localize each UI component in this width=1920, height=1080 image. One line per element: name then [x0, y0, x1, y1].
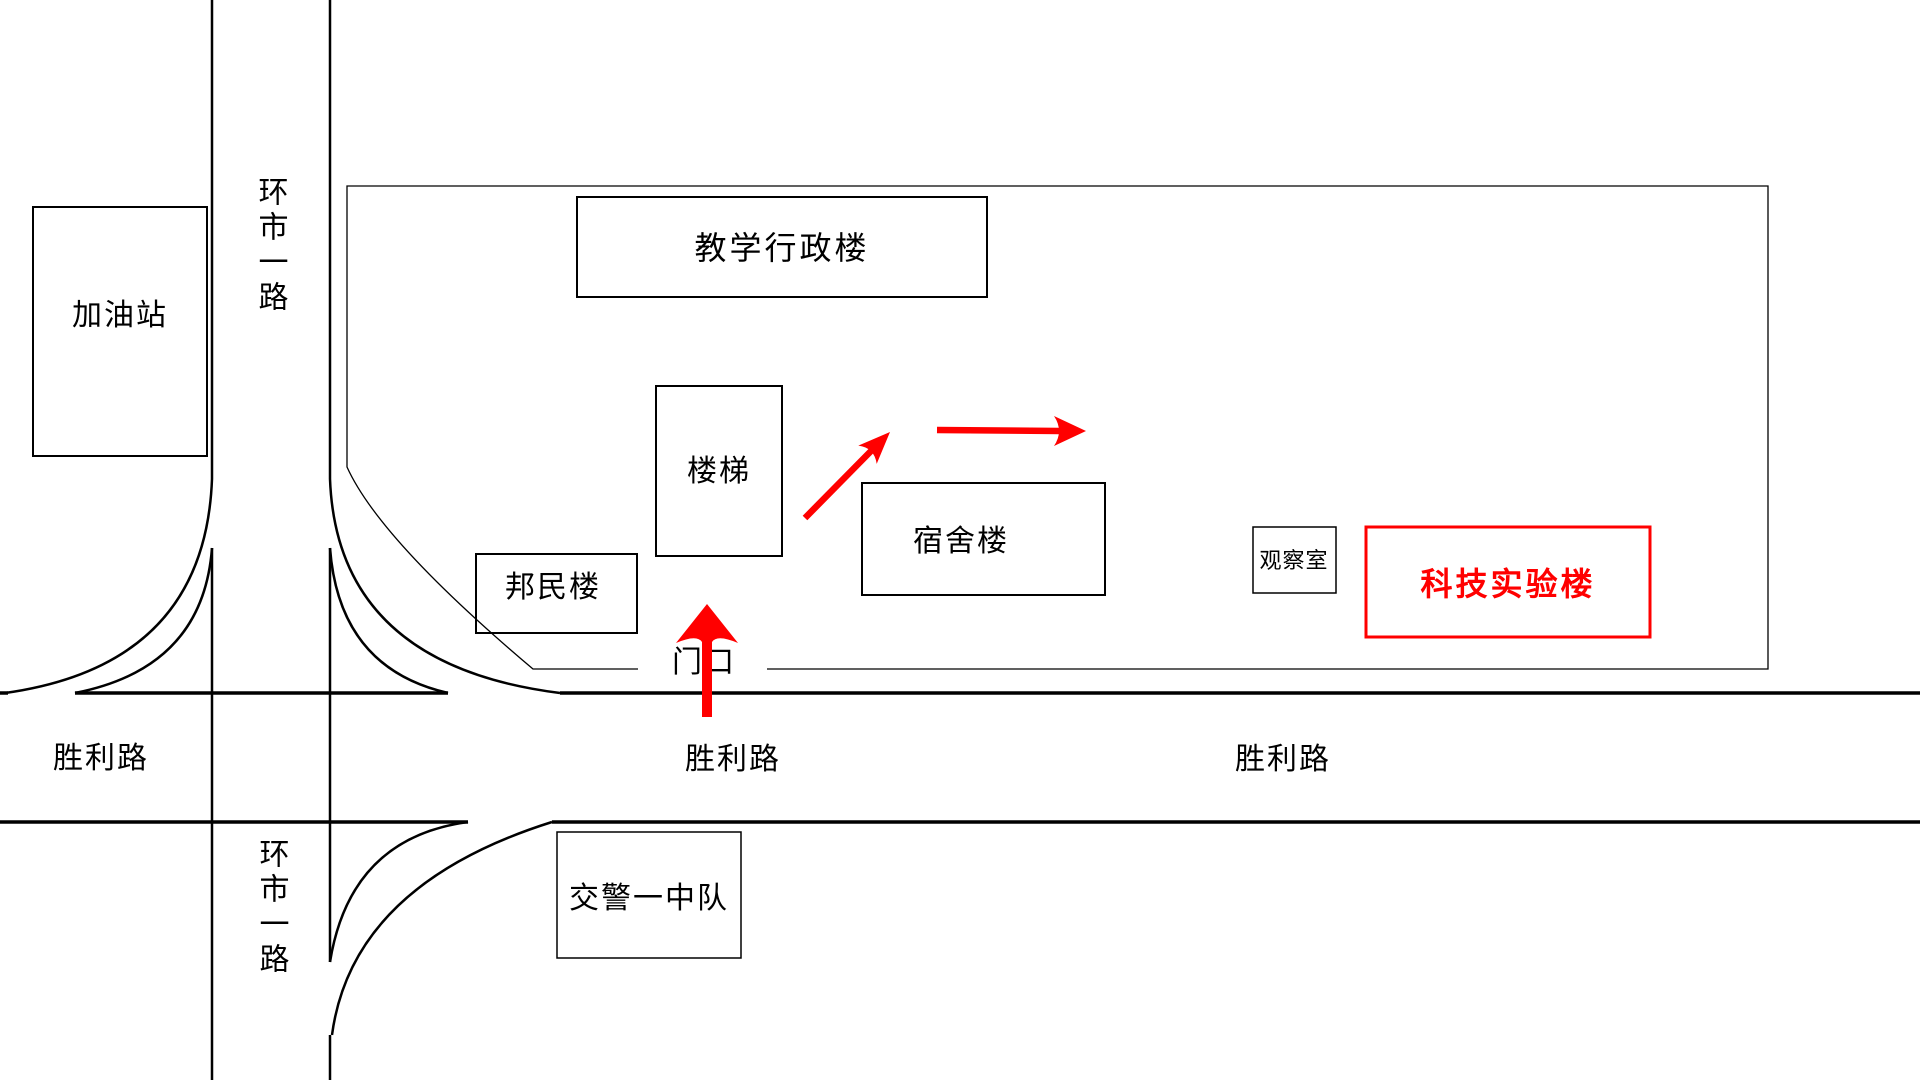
shengli-label-east: 胜利路 [1235, 743, 1331, 776]
traffic-police-label: 交警一中队 [569, 882, 729, 915]
huanshi-label-top: 环市一路 [254, 176, 288, 316]
dormitory-label: 宿舍楼 [913, 525, 1009, 558]
observation-room-label: 观察室 [1259, 548, 1328, 573]
site-map: 加油站 教学行政楼 楼梯 邦民楼 宿舍楼 观察室 科技实验楼 交 [0, 0, 1920, 1080]
se-outer-curve [330, 822, 468, 962]
building-sci-tech-lab: 科技实验楼 [1366, 527, 1650, 637]
sci-tech-lab-label: 科技实验楼 [1420, 566, 1595, 602]
huanshi-label-bottom: 环市一路 [255, 838, 289, 978]
stairs-label: 楼梯 [687, 455, 751, 488]
building-dormitory: 宿舍楼 [862, 483, 1105, 595]
nw-inner-curve [75, 548, 212, 693]
building-traffic-police: 交警一中队 [557, 832, 741, 958]
path-arrow-up-right [805, 432, 890, 518]
path-arrow-right [937, 416, 1086, 446]
shengli-label-center: 胜利路 [685, 743, 781, 776]
bangmin-label: 邦民楼 [505, 571, 601, 604]
nw-outer-curve [5, 479, 212, 693]
road-shengli-lines [0, 693, 1920, 822]
building-gas-station: 加油站 [33, 207, 207, 456]
teaching-admin-label: 教学行政楼 [694, 230, 869, 266]
se-inner-curve [332, 822, 552, 1035]
building-teaching-admin: 教学行政楼 [577, 197, 987, 297]
gas-station-label: 加油站 [72, 299, 168, 332]
map-canvas: 加油站 教学行政楼 楼梯 邦民楼 宿舍楼 观察室 科技实验楼 交 [0, 0, 1920, 1080]
shengli-label-west: 胜利路 [53, 742, 149, 775]
ne-inner-curve [330, 548, 448, 693]
building-observation-room: 观察室 [1253, 527, 1336, 593]
building-stairs: 楼梯 [656, 386, 782, 556]
building-bangmin: 邦民楼 [476, 554, 637, 633]
